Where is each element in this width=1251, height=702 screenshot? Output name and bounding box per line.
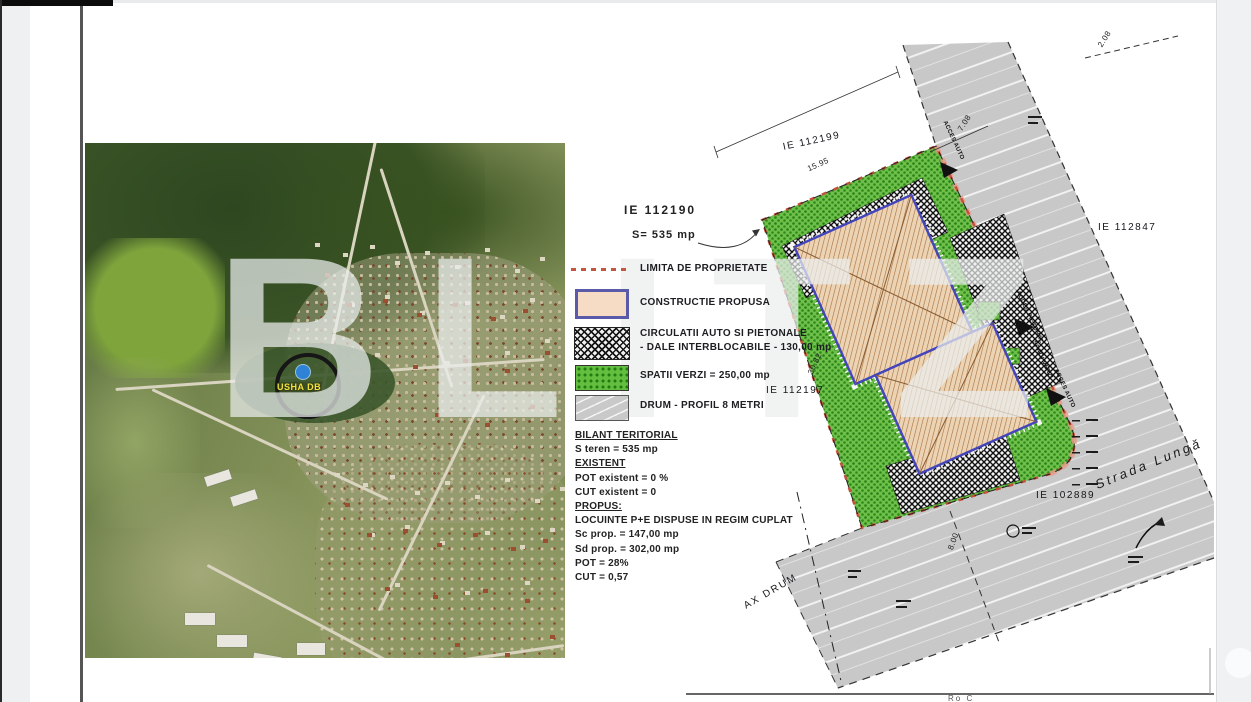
title-block-partial-text: Ro C (948, 694, 974, 702)
left-gray-strip (0, 0, 30, 702)
bilant-line: POT existent = 0 % (575, 472, 825, 486)
legend-swatch-circulation (574, 327, 630, 360)
bilant-line: Sc prop. = 147,00 mp (575, 528, 825, 542)
legend-label-proposed-construction: CONSTRUCTIE PROPUSA (640, 297, 770, 308)
bilant-heading-existent: EXISTENT (575, 457, 825, 471)
legend-label-property-limit: LIMITA DE PROPRIETATE (640, 263, 768, 274)
faint-watermark-circle (1225, 648, 1251, 678)
legend-swatch-proposed-construction (575, 289, 629, 319)
bilant-title: BILANT TERITORIAL (575, 429, 825, 443)
legend-label-circulation-line1: CIRCULATII AUTO SI PIETONALE (640, 328, 807, 339)
legend-parcel-id: IE 112190 (624, 203, 696, 217)
top-strip (0, 0, 1251, 3)
bilant-line: POT = 28% (575, 557, 825, 571)
scanned-site-plan-page: USHA DB (0, 0, 1251, 702)
legend-swatch-road (575, 395, 629, 421)
right-gray-strip (1216, 0, 1251, 702)
legend-parcel-area: S= 535 mp (632, 229, 696, 241)
legend-swatch-green-space (575, 365, 629, 391)
legend-label-green-space: SPATII VERZI = 250,00 mp (640, 370, 770, 381)
bilant-line: Sd prop. = 302,00 mp (575, 543, 825, 557)
parcel-label-ie112197: IE 112197 (766, 385, 824, 396)
legend-label-road: DRUM - PROFIL 8 METRI (640, 400, 764, 411)
left-dark-edge (0, 0, 2, 702)
bilant-heading-propus: PROPUS: (575, 500, 825, 514)
territorial-balance-block: BILANT TERITORIAL S teren = 535 mp EXIST… (575, 429, 825, 585)
bilant-line: CUT existent = 0 (575, 486, 825, 500)
bilant-line: CUT = 0,57 (575, 571, 825, 585)
title-block-edge (686, 648, 1214, 694)
bilant-line: LOCUINTE P+E DISPUSE IN REGIM CUPLAT (575, 514, 825, 528)
legend-swatch-property-limit (571, 268, 631, 271)
legend-label-circulation-line2: - DALE INTERBLOCABILE - 130,00 mp (640, 342, 832, 353)
parcel-label-ie112847: IE 112847 (1098, 222, 1156, 233)
parcel-label-ie102889: IE 102889 (1036, 490, 1095, 501)
bilant-line: S teren = 535 mp (575, 443, 825, 457)
top-left-black-bar (0, 0, 113, 6)
leader-arrowhead (752, 229, 760, 237)
